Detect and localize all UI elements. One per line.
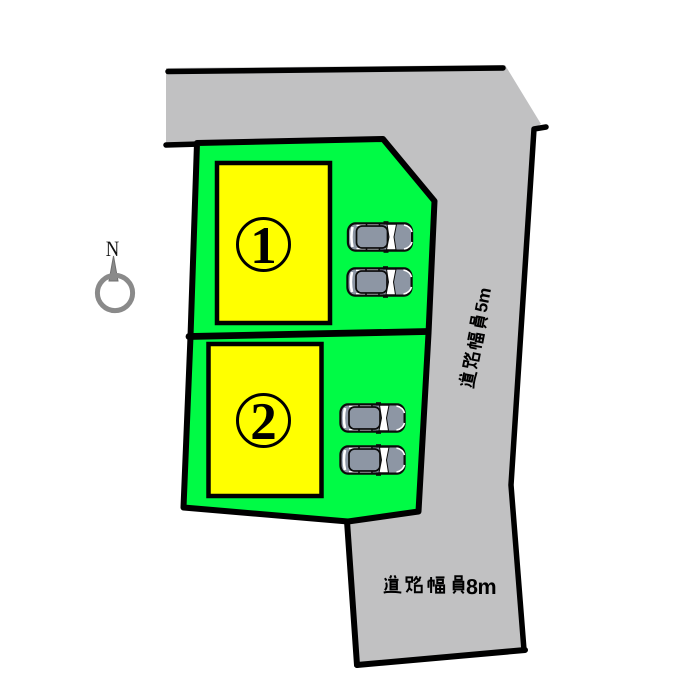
svg-text:N: N — [106, 236, 120, 261]
svg-text:8m: 8m — [466, 575, 496, 599]
svg-text:1: 1 — [250, 217, 277, 275]
svg-text:2: 2 — [250, 393, 277, 451]
